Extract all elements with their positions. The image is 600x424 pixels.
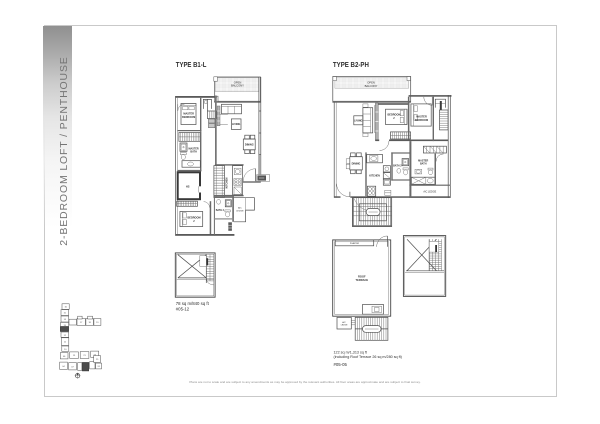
svg-text:2: 2 [393, 117, 395, 120]
svg-text:LIVING: LIVING [354, 119, 362, 122]
svg-text:MASTER: MASTER [416, 115, 427, 118]
svg-text:BATH: BATH [420, 163, 427, 166]
svg-text:TERRACE: TERRACE [356, 278, 369, 282]
svg-text:A/C LEDGE: A/C LEDGE [423, 190, 436, 193]
svg-text:DINING: DINING [352, 162, 361, 165]
svg-text:BEDROOM: BEDROOM [187, 217, 200, 220]
svg-text:BALCONY: BALCONY [365, 84, 378, 88]
svg-text:BATH: BATH [190, 151, 197, 154]
svg-text:BATH 2: BATH 2 [216, 209, 225, 212]
svg-text:BALCONY: BALCONY [231, 84, 244, 88]
svg-text:DINING: DINING [245, 143, 254, 146]
svg-text:#05-05: #05-05 [334, 362, 348, 367]
svg-text:78 sq m/840 sq ft: 78 sq m/840 sq ft [176, 301, 210, 306]
svg-text:#05-12: #05-12 [176, 307, 190, 312]
svg-text:A/C: A/C [238, 207, 242, 210]
svg-text:Plans are not to scale and are: Plans are not to scale and are subject t… [189, 380, 420, 384]
svg-text:TYPE B1-L: TYPE B1-L [176, 60, 207, 69]
svg-text:A/C: A/C [342, 321, 346, 324]
svg-text:KITCHEN: KITCHEN [369, 174, 380, 177]
svg-text:LEDGE: LEDGE [236, 211, 244, 213]
svg-text:LEDGE: LEDGE [341, 325, 348, 327]
svg-text:KITCHEN: KITCHEN [226, 177, 229, 188]
svg-text:(including Roof Terrace 26 sq: (including Roof Terrace 26 sq m/280 sq f… [334, 355, 402, 359]
svg-text:LIVING: LIVING [232, 123, 240, 126]
svg-text:BEDROOM: BEDROOM [182, 116, 195, 119]
svg-text:HS: HS [186, 184, 190, 188]
svg-text:PLANTER: PLANTER [350, 242, 360, 245]
svg-text:TYPE B2-PH: TYPE B2-PH [333, 60, 369, 69]
svg-text:MASTER: MASTER [183, 113, 194, 116]
svg-text:BATH 2: BATH 2 [393, 165, 402, 168]
svg-text:ROOF: ROOF [358, 275, 366, 279]
svg-text:2: 2 [193, 220, 195, 223]
svg-text:BEDROOM: BEDROOM [415, 119, 428, 122]
svg-text:BEDROOM: BEDROOM [387, 114, 400, 117]
